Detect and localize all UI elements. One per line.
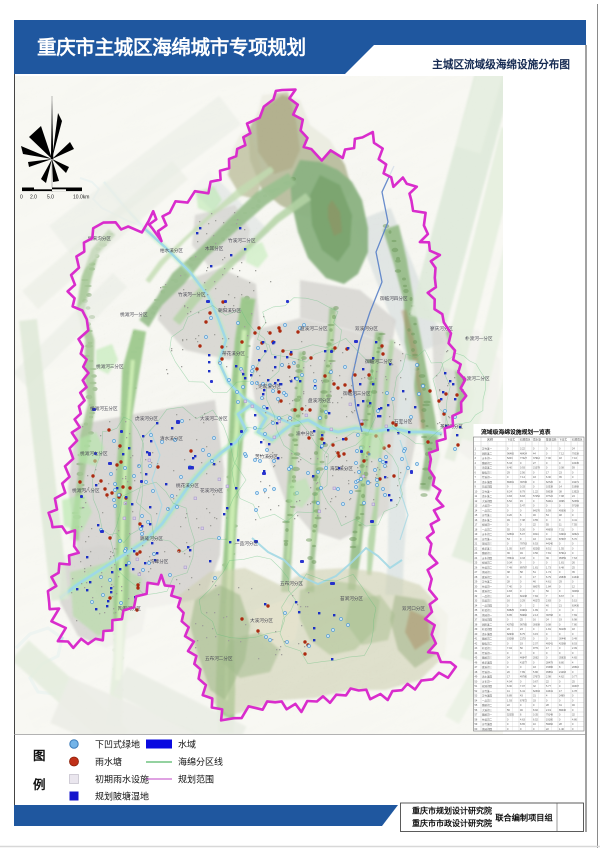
svg-text:花溪河三: 花溪河三 [482, 599, 493, 603]
svg-text:40041: 40041 [546, 643, 554, 646]
svg-text:棁滩河五分区: 棁滩河五分区 [90, 405, 118, 412]
svg-text:5.15: 5.15 [572, 600, 577, 603]
svg-text:31378: 31378 [533, 467, 541, 470]
svg-text:60138: 60138 [520, 595, 528, 598]
svg-text:大溪河一: 大溪河一 [482, 504, 493, 508]
svg-text:茶园河三: 茶园河三 [482, 570, 493, 574]
svg-text:1.55: 1.55 [559, 548, 564, 551]
svg-text:棁滩河四: 棁滩河四 [482, 684, 493, 688]
svg-text:0.33: 0.33 [520, 557, 525, 560]
svg-text:大溪河三: 大溪河三 [482, 708, 493, 712]
svg-text:7.81: 7.81 [546, 552, 551, 555]
svg-text:跳確河三: 跳確河三 [482, 656, 493, 660]
svg-text:例: 例 [33, 777, 46, 792]
svg-text:苦竹溪四: 苦竹溪四 [482, 722, 493, 726]
svg-text:15386: 15386 [546, 666, 554, 669]
svg-text:52355: 52355 [507, 714, 515, 717]
svg-text:82930: 82930 [507, 633, 515, 636]
svg-text:45861: 45861 [546, 671, 554, 674]
svg-text:62720: 62720 [546, 481, 554, 484]
svg-text:78763: 78763 [520, 543, 528, 546]
svg-text:49693: 49693 [546, 529, 554, 532]
svg-text:6.48: 6.48 [559, 567, 564, 570]
svg-text:26845: 26845 [559, 576, 567, 579]
svg-text:海棠溪分区: 海棠溪分区 [330, 465, 353, 472]
svg-text:一品河三: 一品河三 [482, 699, 493, 703]
svg-text:78641: 78641 [507, 557, 515, 560]
svg-text:重庆市市政设计研究院: 重庆市市政设计研究院 [412, 818, 492, 828]
svg-text:桃花溪分区: 桃花溪分区 [176, 482, 199, 489]
svg-text:水域: 水域 [178, 739, 196, 750]
svg-text:雨水塘: 雨水塘 [95, 756, 122, 767]
svg-text:跳確河一: 跳確河一 [482, 713, 493, 717]
svg-text:朝阳溪分区: 朝阳溪分区 [218, 307, 241, 314]
svg-text:竹溪河一: 竹溪河一 [482, 585, 493, 589]
svg-text:95359: 95359 [559, 557, 567, 560]
svg-text:五布河二分区: 五布河二分区 [205, 655, 233, 662]
svg-text:御临河三: 御临河三 [482, 471, 493, 475]
svg-text:8.95: 8.95 [507, 614, 512, 617]
svg-text:0.35: 0.35 [533, 714, 538, 717]
svg-text:棁滩河七分区: 棁滩河七分区 [80, 450, 108, 457]
svg-text:8.75: 8.75 [520, 633, 525, 636]
svg-text:流域级海绵设施规划一览表: 流域级海绵设施规划一览表 [481, 428, 551, 436]
svg-text:41340: 41340 [572, 576, 580, 579]
svg-text:30084: 30084 [572, 590, 580, 593]
svg-text:规划陂塘湿地: 规划陂塘湿地 [95, 791, 149, 802]
svg-text:主城区流域级海绵设施分布图: 主城区流域级海绵设施分布图 [432, 58, 570, 71]
svg-text:1.74: 1.74 [546, 571, 551, 574]
svg-text:御临河三分区: 御临河三分区 [343, 390, 371, 397]
svg-text:8.30: 8.30 [507, 685, 512, 688]
svg-text:8.24: 8.24 [507, 491, 512, 494]
svg-text:盘溪河分区: 盘溪河分区 [308, 397, 331, 404]
svg-text:柏水溪分区: 柏水溪分区 [160, 247, 183, 254]
svg-text:39768: 39768 [546, 614, 554, 617]
svg-text:37912: 37912 [533, 457, 541, 460]
svg-text:御临河二: 御临河二 [482, 642, 493, 646]
svg-text:83825: 83825 [507, 609, 515, 612]
svg-text:盘溪河二: 盘溪河二 [482, 575, 493, 579]
svg-text:双溪河分区: 双溪河分区 [355, 325, 378, 332]
svg-text:19180: 19180 [546, 719, 554, 722]
svg-text:7.14: 7.14 [520, 476, 525, 479]
svg-text:97722: 97722 [546, 495, 554, 498]
svg-text:五布河一: 五布河一 [482, 680, 493, 684]
svg-text:盘溪河三: 盘溪河三 [482, 665, 493, 669]
svg-text:44341: 44341 [546, 690, 554, 693]
svg-text:49780: 49780 [520, 676, 528, 679]
svg-text:5.47: 5.47 [520, 505, 525, 508]
svg-text:跳確河二: 跳確河二 [482, 703, 493, 707]
svg-text:97168: 97168 [572, 505, 580, 508]
svg-text:39706: 39706 [520, 481, 528, 484]
svg-text:7.40: 7.40 [507, 586, 512, 589]
svg-text:5.0: 5.0 [47, 195, 54, 201]
svg-text:8.87: 8.87 [520, 548, 525, 551]
svg-text:0.34: 0.34 [507, 562, 512, 565]
svg-text:图: 图 [33, 749, 46, 763]
svg-text:双河口分区: 双河口分区 [402, 605, 425, 612]
svg-text:8.79: 8.79 [520, 491, 525, 494]
svg-text:2.09: 2.09 [572, 647, 577, 650]
svg-text:清水溪分区: 清水溪分区 [160, 435, 183, 442]
svg-text:4696: 4696 [559, 500, 565, 503]
svg-text:清水溪四: 清水溪四 [482, 632, 493, 636]
svg-text:竹溪河一分区: 竹溪河一分区 [178, 291, 206, 298]
svg-text:7.89: 7.89 [520, 671, 525, 674]
svg-text:68070: 68070 [533, 586, 541, 589]
svg-text:苦竹溪一: 苦竹溪一 [482, 537, 493, 541]
svg-text:苦竹溪四: 苦竹溪四 [482, 694, 493, 698]
svg-text:朴渡河三: 朴渡河三 [482, 608, 493, 612]
svg-text:89391: 89391 [507, 481, 515, 484]
svg-text:37673: 37673 [533, 676, 541, 679]
svg-text:跳確河二: 跳確河二 [482, 461, 493, 465]
svg-text:大溪河分区: 大溪河分区 [250, 617, 273, 624]
svg-text:朴渡河四: 朴渡河四 [482, 627, 493, 631]
svg-text:2.19: 2.19 [546, 709, 551, 712]
svg-text:84176: 84176 [533, 510, 541, 513]
svg-text:8.51: 8.51 [546, 548, 551, 551]
svg-text:4.65: 4.65 [572, 657, 577, 660]
svg-text:5.07: 5.07 [520, 533, 525, 536]
svg-text:7.80: 7.80 [572, 624, 577, 627]
svg-text:下凹式绿地: 下凹式绿地 [95, 739, 140, 750]
svg-text:竹溪河一: 竹溪河一 [482, 651, 493, 655]
svg-text:59082: 59082 [546, 723, 554, 726]
svg-text:2.0: 2.0 [30, 195, 37, 201]
svg-text:虎溪河分区: 虎溪河分区 [135, 415, 158, 422]
svg-text:7.16: 7.16 [572, 457, 577, 460]
svg-text:诧家溪分区: 诧家溪分区 [258, 383, 281, 390]
svg-text:34904: 34904 [559, 533, 567, 536]
svg-text:0.41: 0.41 [572, 519, 577, 522]
svg-text:1.89: 1.89 [533, 609, 538, 612]
svg-text:花溪河分区: 花溪河分区 [200, 487, 223, 494]
svg-text:0.67: 0.67 [533, 681, 538, 684]
svg-text:0.08: 0.08 [546, 624, 551, 627]
svg-text:52369: 52369 [572, 500, 580, 503]
svg-text:木耳分区: 木耳分区 [205, 245, 224, 252]
svg-text:3.22: 3.22 [520, 448, 525, 451]
svg-text:59982: 59982 [520, 614, 528, 617]
svg-text:渝中分区: 渝中分区 [296, 430, 315, 437]
svg-text:6.52: 6.52 [533, 719, 538, 722]
svg-text:2.13: 2.13 [533, 614, 538, 617]
svg-text:67972: 67972 [520, 700, 528, 703]
svg-text:8.65: 8.65 [520, 723, 525, 726]
svg-text:一品河四: 一品河四 [482, 604, 493, 608]
svg-text:35835: 35835 [559, 657, 567, 660]
svg-text:82282: 82282 [533, 548, 541, 551]
svg-text:30608: 30608 [533, 624, 541, 627]
svg-text:66105: 66105 [559, 628, 567, 631]
svg-text:6.89: 6.89 [507, 695, 512, 698]
svg-text:1.73: 1.73 [546, 567, 551, 570]
svg-text:桃花溪四: 桃花溪四 [482, 661, 493, 665]
svg-text:5203: 5203 [507, 457, 513, 460]
svg-text:沟峰分区: 沟峰分区 [150, 558, 169, 565]
svg-text:8.92: 8.92 [533, 709, 538, 712]
svg-text:0.32: 0.32 [546, 538, 551, 541]
svg-text:7.00: 7.00 [546, 457, 551, 460]
svg-text:陂塘湿地: 陂塘湿地 [546, 438, 557, 442]
svg-text:28479: 28479 [546, 662, 554, 665]
svg-text:2.83: 2.83 [546, 600, 551, 603]
svg-text:朝阳溪二: 朝阳溪二 [482, 623, 493, 627]
svg-text:4.61: 4.61 [546, 581, 551, 584]
svg-text:42368: 42368 [559, 643, 567, 646]
svg-text:茶园河一: 茶园河一 [482, 613, 493, 617]
svg-text:0.55: 0.55 [533, 519, 538, 522]
svg-text:0.83: 0.83 [507, 495, 512, 498]
svg-text:21293: 21293 [559, 671, 567, 674]
svg-text:朝阳溪二: 朝阳溪二 [482, 452, 493, 456]
svg-text:7.31: 7.31 [559, 529, 564, 532]
svg-text:桃花溪三: 桃花溪三 [482, 547, 493, 551]
svg-text:5.70: 5.70 [572, 538, 577, 541]
svg-text:跳確河三: 跳確河三 [482, 551, 493, 555]
svg-text:7.38: 7.38 [520, 519, 525, 522]
svg-text:竹溪河二分区: 竹溪河二分区 [228, 237, 256, 244]
svg-text:10.0km: 10.0km [73, 195, 89, 201]
svg-text:7.07: 7.07 [520, 685, 525, 688]
svg-text:62304: 62304 [533, 690, 541, 693]
svg-text:5.33: 5.33 [507, 462, 512, 465]
svg-text:8.80: 8.80 [559, 662, 564, 665]
svg-text:一品河分区: 一品河分区 [235, 540, 258, 547]
svg-text:1.22: 1.22 [533, 491, 538, 494]
svg-text:7.49: 7.49 [507, 567, 512, 570]
svg-text:10045: 10045 [572, 462, 580, 465]
svg-text:初期雨水: 初期雨水 [520, 438, 531, 442]
svg-text:0.93: 0.93 [520, 467, 525, 470]
svg-text:6.30: 6.30 [546, 476, 551, 479]
svg-text:6.52: 6.52 [507, 500, 512, 503]
svg-text:8.67: 8.67 [559, 595, 564, 598]
svg-text:48424: 48424 [520, 453, 528, 456]
svg-text:51968: 51968 [572, 486, 580, 489]
svg-text:87697: 87697 [559, 538, 567, 541]
svg-text:90785: 90785 [520, 624, 528, 627]
svg-text:苦竹溪二: 苦竹溪二 [482, 580, 493, 584]
svg-text:苦竹溪一: 苦竹溪一 [482, 447, 493, 451]
svg-text:0: 0 [20, 195, 23, 201]
svg-text:79148: 79148 [546, 714, 554, 717]
svg-text:大溪河四: 大溪河四 [482, 499, 493, 503]
svg-text:10538: 10538 [546, 486, 554, 489]
svg-text:0.56: 0.56 [533, 552, 538, 555]
svg-text:2.56: 2.56 [520, 472, 525, 475]
svg-text:4.83: 4.83 [507, 590, 512, 593]
svg-text:2489: 2489 [559, 695, 565, 698]
svg-text:8.93: 8.93 [520, 495, 525, 498]
svg-text:9314: 9314 [533, 533, 539, 536]
svg-text:6.79: 6.79 [546, 576, 551, 579]
svg-text:棁滩河八分区: 棁滩河八分区 [72, 487, 100, 494]
svg-text:清水溪四: 清水溪四 [482, 480, 493, 484]
svg-text:4.04: 4.04 [507, 681, 512, 684]
svg-text:8.03: 8.03 [572, 643, 577, 646]
svg-text:6.53: 6.53 [533, 543, 538, 546]
svg-text:名称: 名称 [487, 437, 493, 442]
svg-text:茶园河四: 茶园河四 [482, 727, 493, 731]
svg-text:7.69: 7.69 [572, 614, 577, 617]
svg-text:五布河二: 五布河二 [482, 532, 493, 536]
svg-text:2.98: 2.98 [546, 676, 551, 679]
svg-text:70038: 70038 [572, 453, 580, 456]
svg-text:一品河三: 一品河三 [482, 594, 493, 598]
svg-text:规划范围: 规划范围 [178, 774, 214, 785]
svg-text:朴渡河一分区: 朴渡河一分区 [465, 335, 493, 342]
svg-text:下凹式: 下凹式 [559, 438, 567, 442]
svg-text:五布河分区: 五布河分区 [280, 580, 303, 587]
svg-text:45606: 45606 [559, 510, 567, 513]
svg-text:0.20: 0.20 [507, 514, 512, 517]
svg-text:跳確河分区: 跳確河分区 [140, 535, 163, 542]
svg-text:下凹式: 下凹式 [507, 438, 515, 442]
svg-text:竹溪河二: 竹溪河二 [482, 718, 493, 722]
svg-text:32504: 32504 [507, 533, 515, 536]
svg-text:苦竹溪三: 苦竹溪三 [482, 513, 493, 517]
svg-text:6.98: 6.98 [572, 619, 577, 622]
svg-text:42782: 42782 [507, 624, 515, 627]
svg-text:3.15: 3.15 [533, 633, 538, 636]
svg-text:0.77: 0.77 [572, 676, 577, 679]
svg-text:竹溪河二: 竹溪河二 [482, 566, 493, 570]
svg-text:苔涧河分区: 苔涧河分区 [340, 595, 363, 602]
svg-text:海棠溪二: 海棠溪二 [482, 466, 493, 470]
svg-text:茶园河四: 茶园河四 [482, 618, 493, 622]
svg-text:46307: 46307 [572, 685, 580, 688]
svg-text:1.05: 1.05 [507, 548, 512, 551]
svg-text:5.26: 5.26 [520, 529, 525, 532]
svg-text:朴渡河二分区: 朴渡河二分区 [462, 375, 490, 382]
svg-text:92621: 92621 [572, 533, 580, 536]
svg-text:棁滩河一: 棁滩河一 [482, 523, 493, 527]
svg-text:五布河一: 五布河一 [482, 456, 493, 460]
svg-text:93038: 93038 [546, 491, 554, 494]
svg-text:初期雨水设施: 初期雨水设施 [95, 774, 149, 785]
svg-text:清水溪二: 清水溪二 [482, 494, 493, 498]
svg-text:13523: 13523 [572, 491, 580, 494]
svg-text:4.86: 4.86 [572, 719, 577, 722]
svg-text:1.81: 1.81 [533, 567, 538, 570]
svg-text:40272: 40272 [533, 600, 541, 603]
svg-text:竹溪河一: 竹溪河一 [482, 670, 493, 674]
svg-text:63436: 63436 [572, 605, 580, 608]
svg-text:竹溪河一: 竹溪河一 [482, 475, 493, 479]
svg-text:7.98: 7.98 [559, 495, 564, 498]
svg-text:89787: 89787 [520, 567, 528, 570]
svg-text:重庆市规划设计研究院: 重庆市规划设计研究院 [412, 806, 492, 816]
svg-text:89046: 89046 [559, 709, 567, 712]
svg-text:初期雨水: 初期雨水 [572, 438, 583, 442]
svg-text:2062: 2062 [533, 657, 539, 660]
svg-text:1.81: 1.81 [546, 628, 551, 631]
svg-text:苦竹溪一: 苦竹溪一 [482, 689, 493, 693]
svg-text:御临河二分区: 御临河二分区 [365, 358, 393, 365]
svg-text:联合编制项目组: 联合编制项目组 [495, 813, 553, 823]
svg-text:7.12: 7.12 [559, 453, 564, 456]
svg-text:46847: 46847 [520, 657, 528, 660]
svg-text:一品河二: 一品河二 [482, 528, 493, 532]
svg-text:19271: 19271 [572, 481, 580, 484]
svg-text:5.59: 5.59 [546, 510, 551, 513]
svg-text:重庆市主城区海绵城市专项规划: 重庆市主城区海绵城市专项规划 [37, 36, 306, 59]
svg-text:蒂花溪分区: 蒂花溪分区 [222, 350, 245, 357]
svg-text:91919: 91919 [520, 609, 528, 612]
svg-text:朴渡河三: 朴渡河三 [482, 646, 493, 650]
svg-text:7.04: 7.04 [507, 647, 512, 650]
svg-text:苦竹溪分区: 苦竹溪分区 [255, 453, 278, 460]
svg-text:清水溪四: 清水溪四 [482, 675, 493, 679]
svg-text:77427: 77427 [520, 457, 528, 460]
svg-text:五布河四: 五布河四 [482, 556, 493, 560]
svg-text:盘溪河二分区: 盘溪河二分区 [300, 325, 328, 332]
svg-text:41577: 41577 [520, 662, 528, 665]
svg-text:5.86: 5.86 [533, 671, 538, 674]
svg-text:87914: 87914 [559, 552, 567, 555]
svg-text:0.49: 0.49 [572, 638, 577, 641]
svg-text:9771: 9771 [533, 647, 539, 650]
svg-text:57252: 57252 [533, 495, 541, 498]
svg-text:2170: 2170 [520, 638, 526, 641]
svg-text:20516: 20516 [572, 666, 580, 669]
svg-text:30446: 30446 [559, 638, 567, 641]
svg-text:苦竹溪一: 苦竹溪一 [482, 490, 493, 494]
svg-text:2.07: 2.07 [533, 643, 538, 646]
svg-text:5.77: 5.77 [546, 685, 551, 688]
svg-text:一品河二: 一品河二 [482, 509, 493, 513]
svg-text:清水溪二: 清水溪二 [482, 518, 493, 522]
svg-text:跳確河二: 跳確河二 [482, 637, 493, 641]
svg-text:8.40: 8.40 [507, 467, 512, 470]
svg-text:棁滩河二: 棁滩河二 [482, 561, 493, 565]
svg-text:3.29: 3.29 [520, 600, 525, 603]
svg-text:雨水塘: 雨水塘 [533, 438, 541, 442]
svg-text:1.40: 1.40 [559, 728, 564, 731]
svg-text:44140: 44140 [546, 543, 554, 546]
svg-text:茶园河三: 茶园河三 [482, 542, 493, 546]
svg-text:棁滩河三分区: 棁滩河三分区 [96, 363, 124, 370]
svg-text:海绵分区线: 海绵分区线 [178, 756, 223, 767]
svg-text:7.55: 7.55 [572, 524, 577, 527]
svg-text:19268: 19268 [507, 638, 515, 641]
svg-text:大溪河二分区: 大溪河二分区 [200, 415, 228, 422]
svg-text:4.78: 4.78 [572, 690, 577, 693]
svg-text:96465: 96465 [507, 453, 515, 456]
svg-text:1.84: 1.84 [546, 586, 551, 589]
svg-text:4.62: 4.62 [559, 676, 564, 679]
svg-text:棁滩河一分区: 棁滩河一分区 [120, 311, 148, 318]
svg-text:石室分区: 石室分区 [394, 418, 413, 425]
svg-text:4.63: 4.63 [520, 719, 525, 722]
svg-text:花溪河四: 花溪河四 [482, 485, 493, 489]
svg-text:6.41: 6.41 [520, 690, 525, 693]
svg-text:3.08: 3.08 [559, 467, 564, 470]
svg-text:1.93: 1.93 [507, 700, 512, 703]
svg-text:7.84: 7.84 [533, 595, 538, 598]
svg-text:7.63: 7.63 [572, 557, 577, 560]
svg-text:盘溪河二: 盘溪河二 [482, 589, 493, 593]
svg-text:御临河四分区: 御临河四分区 [380, 295, 408, 302]
svg-text:54411: 54411 [546, 500, 553, 503]
svg-text:0.33: 0.33 [520, 486, 525, 489]
svg-text:1.81: 1.81 [559, 562, 564, 565]
